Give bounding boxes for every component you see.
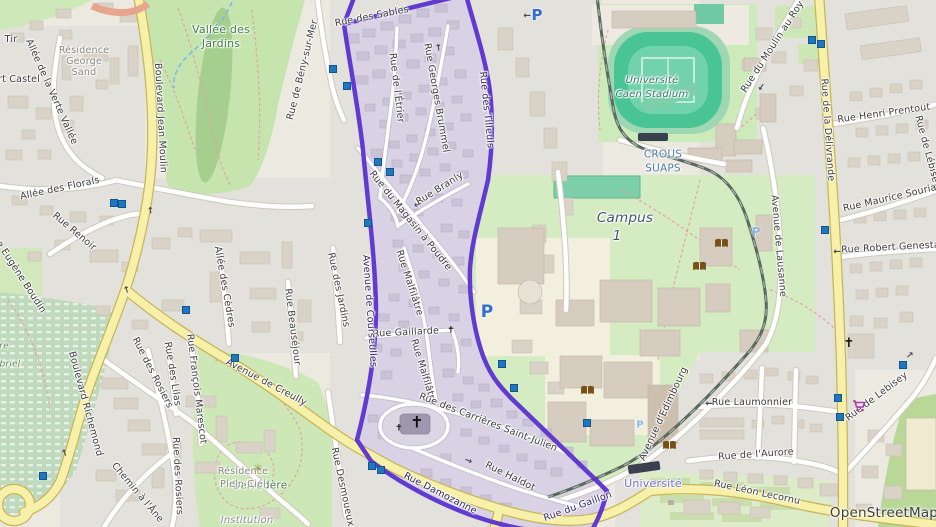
map-canvas[interactable]: Boulevard Jean MoulinBoulevard Richemond… (0, 0, 936, 527)
attribution-63[interactable]: OpenStreetMap (830, 506, 936, 520)
base-map-tiles (0, 0, 936, 527)
